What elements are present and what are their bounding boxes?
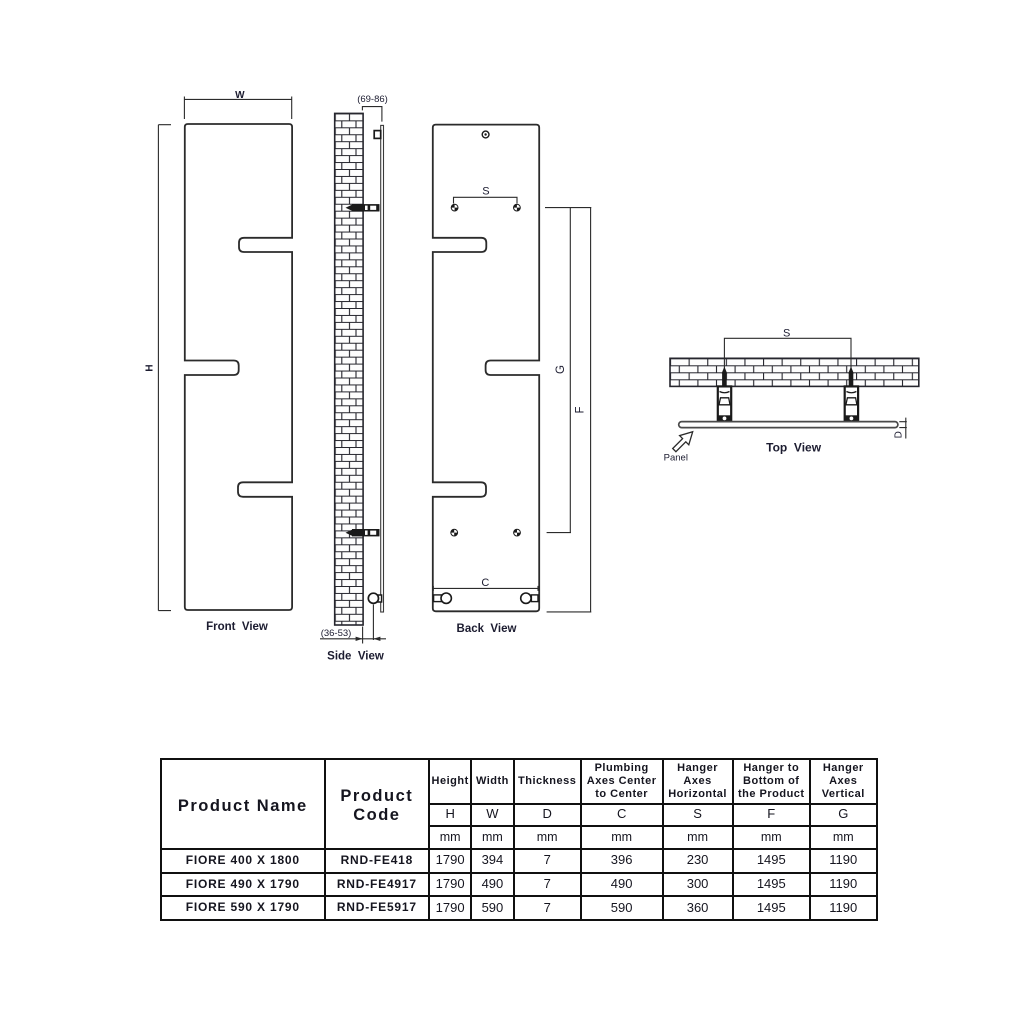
svg-text:H: H — [145, 364, 156, 371]
svg-text:(36-53): (36-53) — [321, 628, 352, 639]
svg-text:Back View: Back View — [457, 623, 517, 635]
svg-text:C: C — [481, 577, 489, 589]
svg-text:S: S — [482, 186, 489, 198]
svg-text:D: D — [893, 431, 904, 438]
svg-text:F: F — [574, 406, 586, 413]
svg-text:Top View: Top View — [766, 441, 822, 455]
svg-text:Side View: Side View — [327, 651, 384, 663]
svg-text:G: G — [555, 365, 567, 374]
svg-text:W: W — [235, 90, 245, 101]
svg-text:(69-86): (69-86) — [357, 94, 388, 105]
svg-text:S: S — [783, 328, 790, 340]
svg-text:Panel: Panel — [664, 452, 688, 463]
svg-text:Front View: Front View — [206, 621, 268, 633]
